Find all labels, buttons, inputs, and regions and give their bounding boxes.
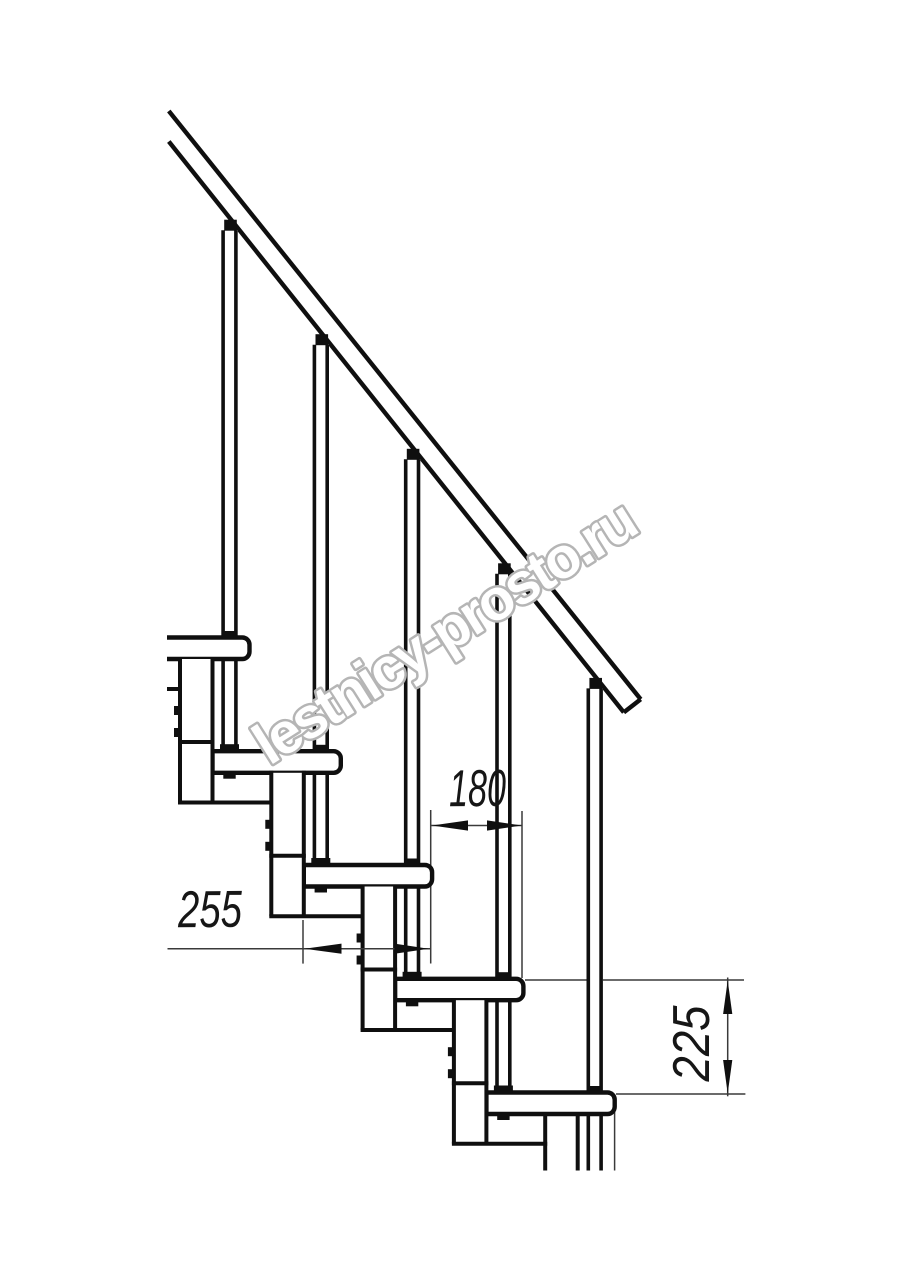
svg-text:255: 255 [177, 881, 243, 940]
svg-text:225: 225 [663, 1005, 721, 1083]
svg-text:180: 180 [449, 760, 507, 818]
